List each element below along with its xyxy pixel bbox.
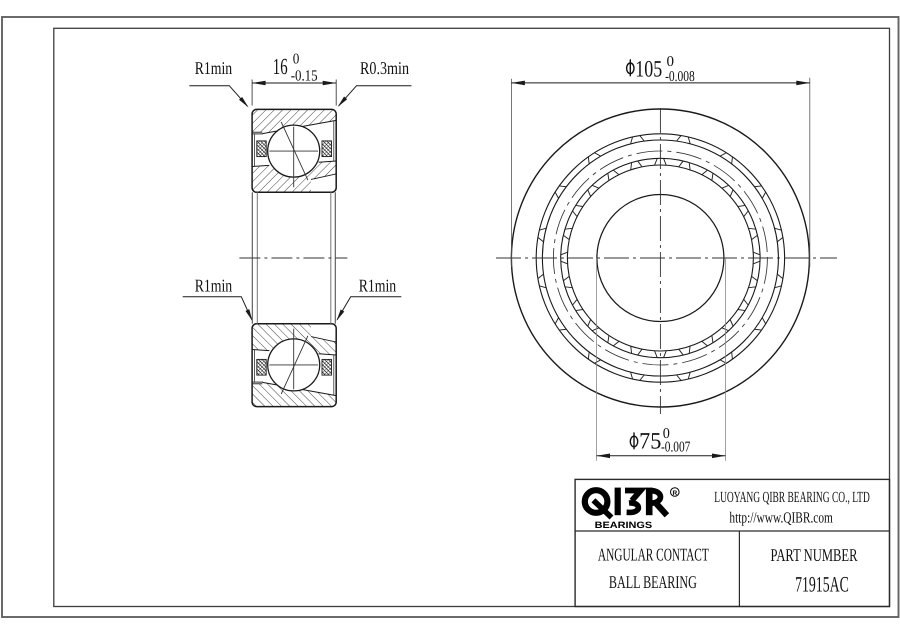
- svg-text:-0.15: -0.15: [291, 67, 318, 84]
- svg-text:0: 0: [667, 54, 675, 70]
- svg-text:ANGULAR CONTACT: ANGULAR CONTACT: [598, 545, 709, 565]
- svg-text:-0.008: -0.008: [665, 69, 695, 85]
- svg-text:75: 75: [639, 429, 661, 455]
- svg-text:R1min: R1min: [195, 58, 233, 78]
- svg-text:16: 16: [273, 54, 288, 79]
- svg-text:http://www.QIBR.com: http://www.QIBR.com: [729, 509, 833, 526]
- svg-text:LUOYANG QIBR BEARING CO., LTD: LUOYANG QIBR BEARING CO., LTD: [714, 489, 870, 506]
- svg-text:PART NUMBER: PART NUMBER: [771, 545, 858, 565]
- svg-text:R1min: R1min: [195, 276, 233, 296]
- svg-text:R0.3min: R0.3min: [360, 58, 409, 78]
- svg-text:R: R: [672, 490, 677, 497]
- svg-text:BALL BEARING: BALL BEARING: [609, 572, 697, 592]
- svg-text:-0.007: -0.007: [661, 440, 691, 456]
- svg-text:105: 105: [635, 57, 662, 83]
- svg-text:BEARINGS: BEARINGS: [595, 520, 653, 530]
- svg-text:71915AC: 71915AC: [795, 571, 849, 596]
- svg-text:0: 0: [293, 52, 300, 68]
- svg-text:R1min: R1min: [359, 276, 397, 296]
